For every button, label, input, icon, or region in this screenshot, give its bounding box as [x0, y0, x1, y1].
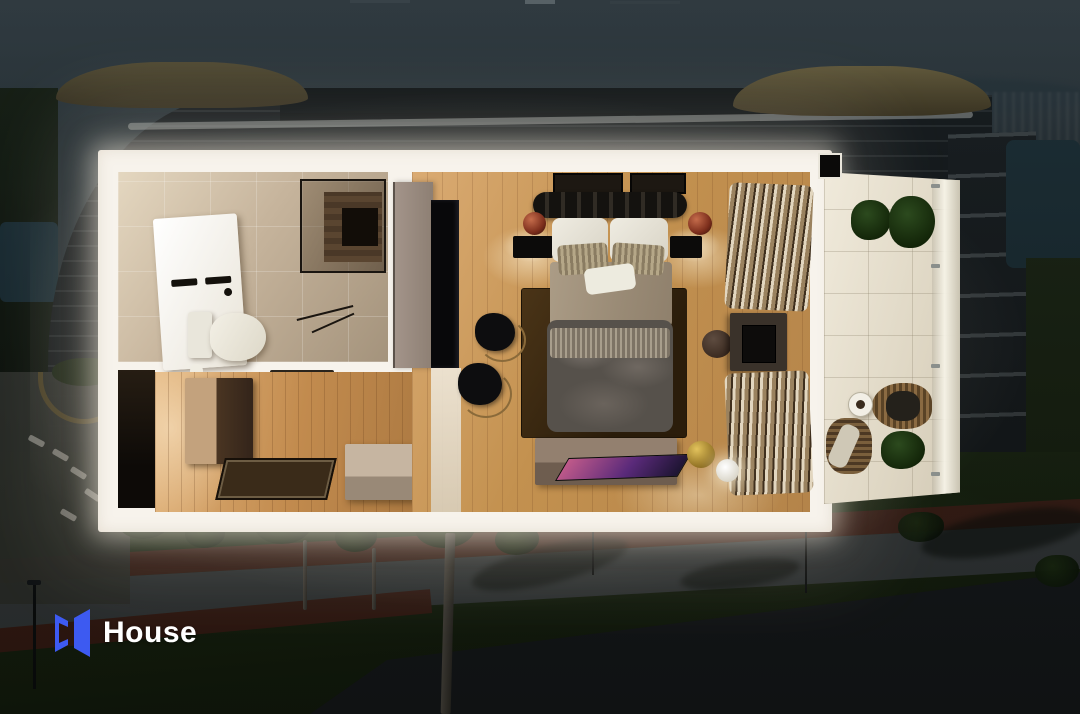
- doormat: [215, 458, 337, 500]
- curtain-lower: [724, 370, 813, 496]
- wall-art-frame: [630, 173, 686, 194]
- toilet-bowl: [210, 313, 266, 361]
- ceiling-spotlight: [818, 153, 842, 179]
- glass-railing: [932, 172, 960, 504]
- curtain-upper: [724, 182, 813, 312]
- brand-logo: House: [55, 607, 315, 659]
- shower-glass-door-line: [312, 313, 355, 334]
- nightstand-left: [513, 236, 553, 258]
- railing-post: [931, 184, 940, 188]
- railing-post: [931, 472, 940, 476]
- balcony: [824, 172, 960, 504]
- scene: House: [0, 0, 1080, 714]
- lounge-chair: [475, 313, 515, 351]
- wardrobe: [431, 200, 459, 368]
- lounge-chair: [458, 363, 502, 405]
- potted-plant: [889, 196, 935, 248]
- brand-name: House: [103, 616, 197, 650]
- railing-post: [931, 364, 940, 368]
- console-cabinet: [185, 378, 253, 464]
- table-lamp-right: [688, 212, 712, 235]
- gold-bowl: [687, 441, 715, 468]
- cropped-text-remnant: [610, 1, 680, 4]
- shower-panel: [342, 208, 378, 246]
- railing-post: [931, 264, 940, 268]
- sink-slot: [205, 276, 231, 285]
- coffee-cup: [856, 400, 865, 409]
- round-stool: [702, 330, 732, 358]
- sphere-floor-lamp: [716, 459, 739, 482]
- bed-headboard: [533, 192, 687, 218]
- sink-slot: [171, 278, 197, 287]
- entry-doorway: [118, 370, 155, 508]
- lit-wall-panel: [431, 368, 461, 512]
- cropped-text-remnant: [350, 0, 410, 3]
- tv-cabinet-screen: [742, 325, 776, 363]
- sliding-door: [393, 182, 433, 368]
- flat-tv: [555, 454, 691, 481]
- potted-plant: [851, 200, 891, 240]
- cropped-text-remnant: [525, 0, 555, 4]
- floor-plan: [98, 150, 832, 532]
- striped-foot-band: [550, 328, 670, 358]
- house-logo-icon: [55, 609, 91, 657]
- wall-art-frame: [553, 173, 623, 194]
- faucet-dot: [224, 288, 233, 297]
- table-lamp-left: [523, 212, 546, 235]
- toilet-tank: [188, 312, 212, 358]
- armchair-cushion: [886, 391, 920, 421]
- room-bathroom: [118, 172, 388, 362]
- floor-plant: [881, 431, 925, 469]
- nightstand-right: [670, 236, 702, 258]
